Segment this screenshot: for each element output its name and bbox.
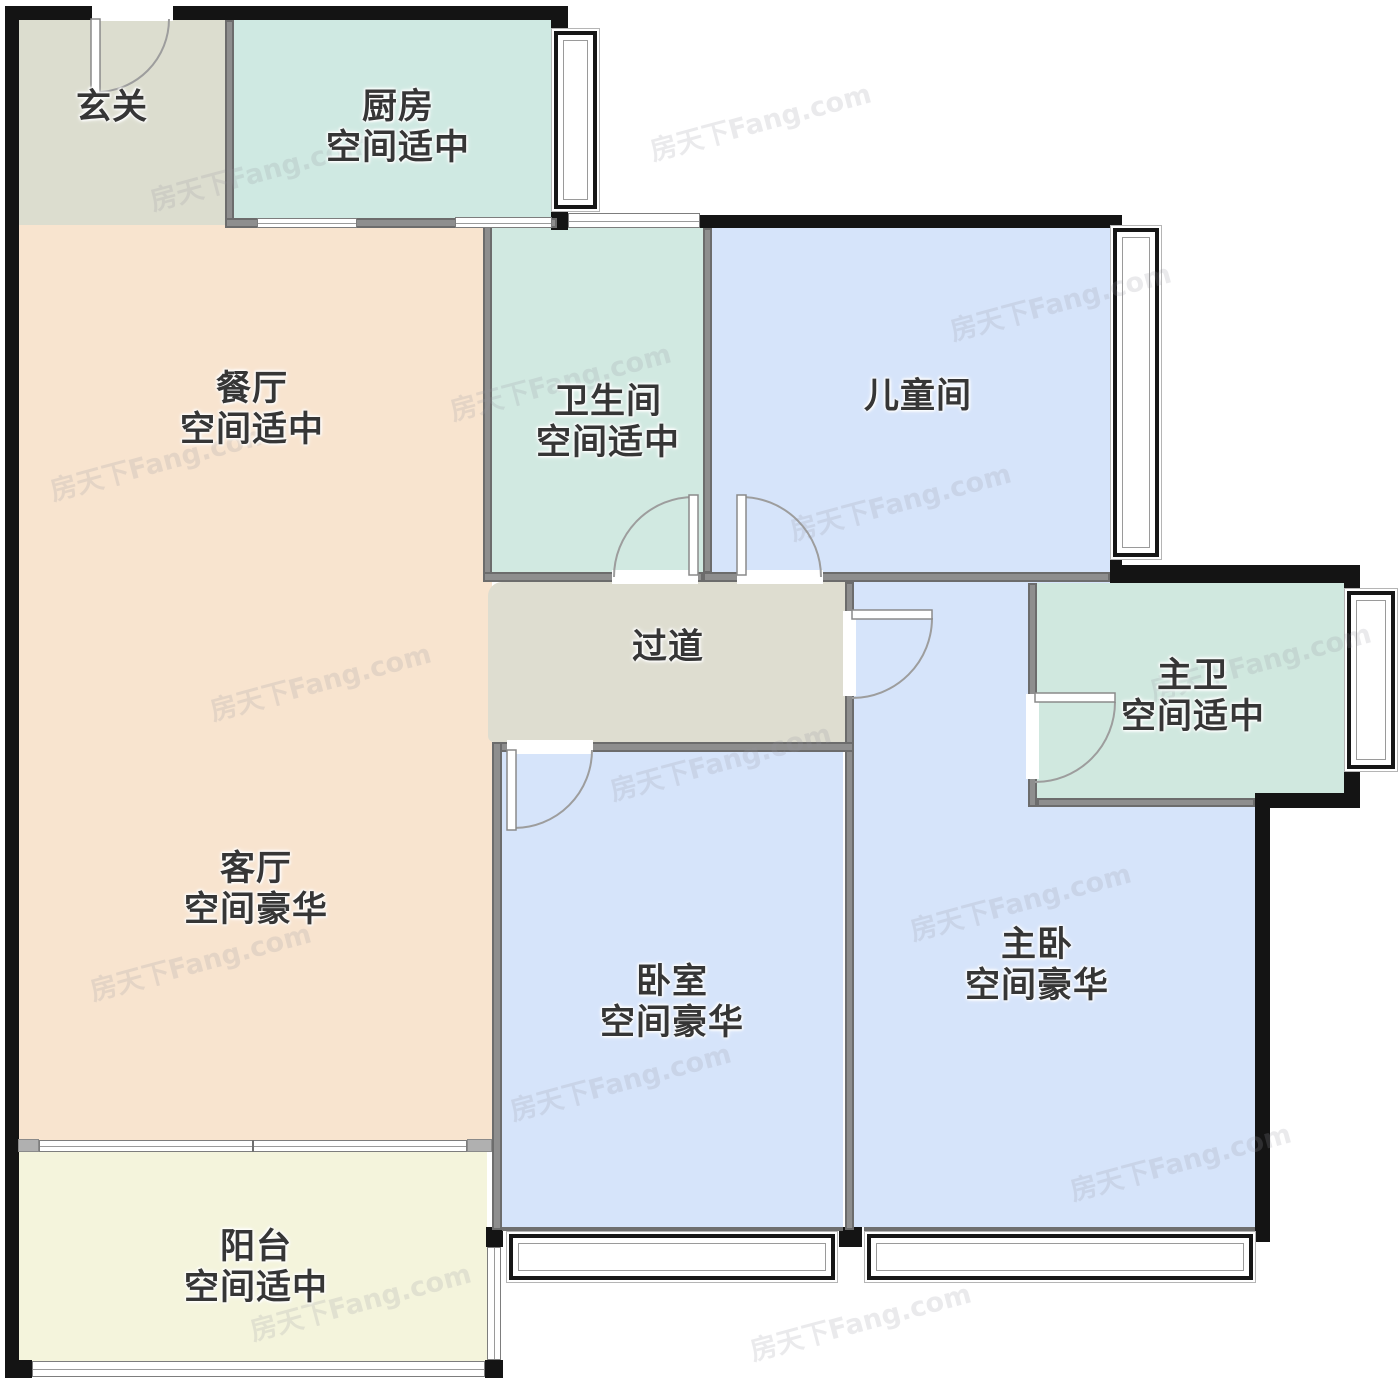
label-hallway: 过道 [632,628,704,669]
room-name: 过道 [632,628,704,669]
room-subtitle: 空间适中 [1121,697,1265,738]
label-entry-hall: 玄关 [76,88,148,129]
label-kids-room: 儿童间 [864,377,972,418]
room-subtitle: 空间适中 [536,423,680,464]
label-balcony: 阳台 空间适中 [184,1227,328,1309]
room-name: 卫生间 [536,382,680,423]
room-name: 玄关 [76,88,148,129]
room-subtitle: 空间豪华 [184,890,328,931]
label-bathroom: 卫生间 空间适中 [536,382,680,464]
room-name: 厨房 [326,87,470,128]
room-name: 客厅 [184,849,328,890]
master-bathroom-door [1026,693,1115,782]
room-subtitle: 空间豪华 [965,966,1109,1007]
bathroom-door [612,495,698,584]
room-subtitle: 空间适中 [180,410,324,451]
room-name: 儿童间 [864,377,972,418]
room-subtitle: 空间豪华 [600,1003,744,1044]
kids-room-door [737,495,823,584]
room-name: 卧室 [600,962,744,1003]
room-name: 主卫 [1121,656,1265,697]
room-name: 主卧 [965,925,1109,966]
room-name: 阳台 [184,1227,328,1268]
room-subtitle: 空间适中 [326,128,470,169]
master-bedroom-door [843,610,932,698]
entrance-door [91,4,173,93]
label-bedroom: 卧室 空间豪华 [600,962,744,1044]
label-living-room: 客厅 空间豪华 [184,849,328,931]
label-dining-room: 餐厅 空间适中 [180,369,324,451]
label-master-bathroom: 主卫 空间适中 [1121,656,1265,738]
label-master-bedroom: 主卧 空间豪华 [965,925,1109,1007]
room-subtitle: 空间适中 [184,1268,328,1309]
floor-plan: 房天下Fang.com 房天下Fang.com 房天下Fang.com 房天下F… [0,0,1400,1381]
room-name: 餐厅 [180,369,324,410]
bedroom-door [507,740,593,830]
label-kitchen: 厨房 空间适中 [326,87,470,169]
